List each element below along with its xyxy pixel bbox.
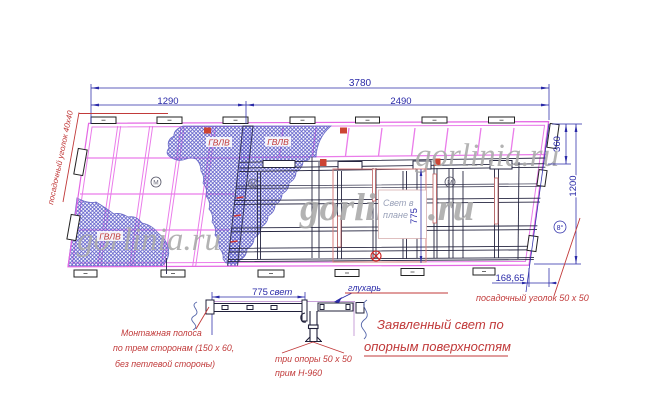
svg-text:2490: 2490 [390, 96, 411, 107]
svg-text:глухарь: глухарь [348, 283, 381, 293]
svg-text:М: М [153, 180, 158, 187]
svg-text:360: 360 [552, 136, 563, 152]
svg-text:ГВЛВ: ГВЛВ [99, 232, 121, 242]
svg-text:Монтажная полоса: Монтажная полоса [121, 328, 202, 338]
svg-text:Свет в: Свет в [383, 198, 414, 208]
svg-text:по трем сторонам (150 х 60,: по трем сторонам (150 х 60, [113, 343, 234, 353]
svg-text:без петлевой стороны): без петлевой стороны) [115, 359, 215, 369]
svg-text:три опоры 50 х 50: три опоры 50 х 50 [275, 354, 352, 364]
svg-text:М: М [250, 181, 255, 188]
svg-text:8°: 8° [557, 224, 564, 232]
svg-text:свет: свет [270, 287, 293, 298]
svg-text:gorlinia.ru: gorlinia.ru [415, 138, 559, 174]
svg-text:775: 775 [409, 208, 420, 224]
svg-text:опорным поверхностям: опорным поверхностям [364, 339, 511, 354]
svg-text:посадочный уголок 50 х 50: посадочный уголок 50 х 50 [476, 293, 589, 303]
svg-text:плане: плане [383, 210, 408, 220]
svg-text:прим Н-960: прим Н-960 [275, 368, 322, 378]
svg-text:ГВЛВ: ГВЛВ [267, 137, 289, 147]
svg-text:168,65: 168,65 [495, 273, 524, 284]
svg-text:3780: 3780 [349, 78, 372, 89]
svg-text:Заявленный свет по: Заявленный свет по [377, 317, 504, 332]
svg-text:ГВЛВ: ГВЛВ [208, 138, 230, 148]
svg-text:775: 775 [252, 287, 268, 298]
svg-text:1200: 1200 [568, 175, 579, 196]
svg-text:1290: 1290 [157, 96, 178, 107]
